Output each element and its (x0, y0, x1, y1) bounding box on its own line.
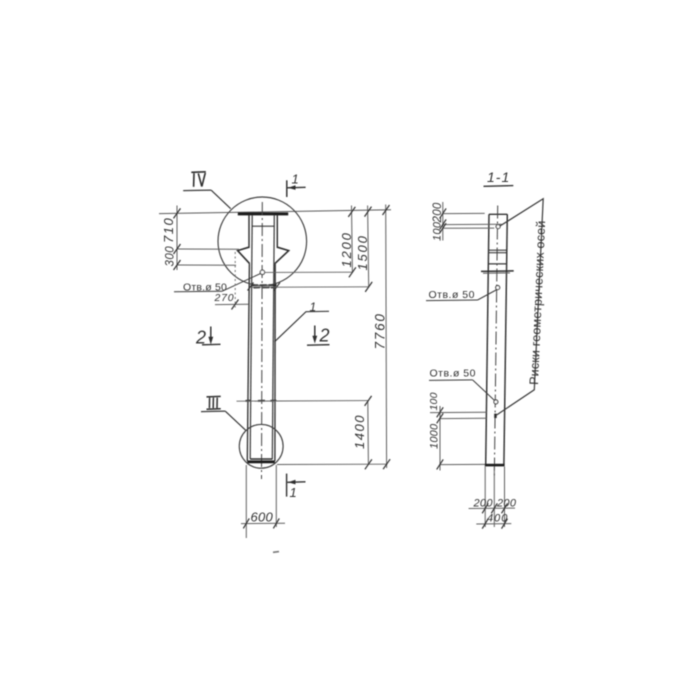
svg-text:200: 200 (432, 202, 444, 223)
svg-text:270: 270 (214, 292, 235, 304)
svg-text:710: 710 (161, 217, 176, 243)
svg-text:100: 100 (428, 392, 440, 410)
svg-text:100: 100 (432, 221, 444, 241)
svg-text:600: 600 (251, 510, 274, 525)
svg-text:1000: 1000 (429, 423, 441, 449)
svg-text:Отв.ø 50: Отв.ø 50 (430, 368, 476, 380)
svg-text:1200: 1200 (339, 231, 354, 267)
svg-text:1400: 1400 (352, 414, 367, 449)
svg-text:1: 1 (310, 300, 317, 314)
svg-text:1: 1 (290, 485, 297, 500)
svg-text:2: 2 (319, 326, 330, 346)
svg-text:7760: 7760 (373, 312, 388, 349)
svg-text:400: 400 (487, 513, 508, 525)
svg-text:200: 200 (496, 498, 517, 510)
svg-text:200: 200 (473, 498, 494, 510)
svg-text:1500: 1500 (355, 234, 370, 270)
svg-text:300: 300 (165, 246, 177, 267)
svg-text:1: 1 (292, 172, 299, 187)
svg-text:Отв.ø 50: Отв.ø 50 (429, 289, 475, 301)
svg-text:1-1: 1-1 (487, 169, 510, 185)
